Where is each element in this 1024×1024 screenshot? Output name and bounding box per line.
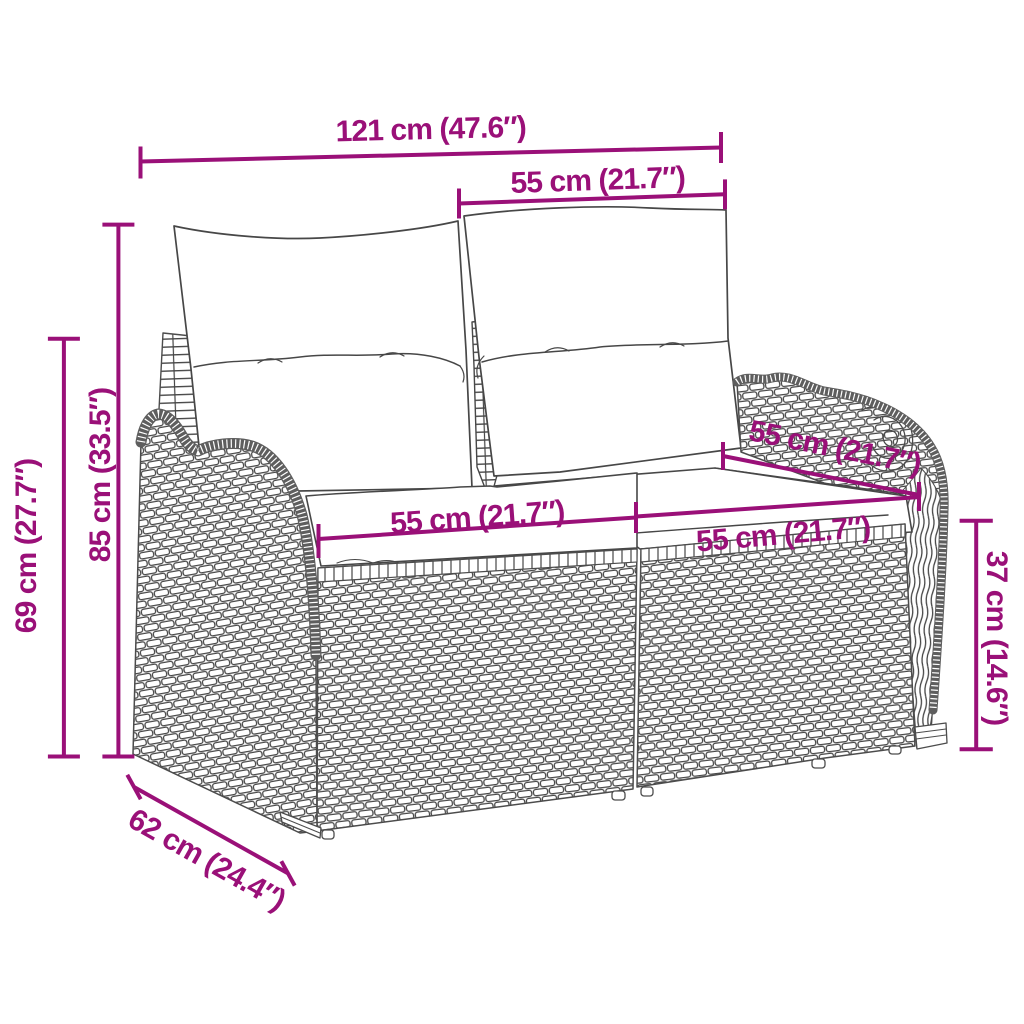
svg-text:69 cm (27.7″): 69 cm (27.7″) (10, 459, 43, 633)
svg-text:55 cm (21.7″): 55 cm (21.7″) (510, 161, 685, 200)
svg-text:37 cm (14.6″): 37 cm (14.6″) (980, 551, 1013, 725)
svg-text:85 cm (33.5″): 85 cm (33.5″) (84, 388, 117, 562)
svg-text:121 cm (47.6″): 121 cm (47.6″) (335, 111, 526, 149)
